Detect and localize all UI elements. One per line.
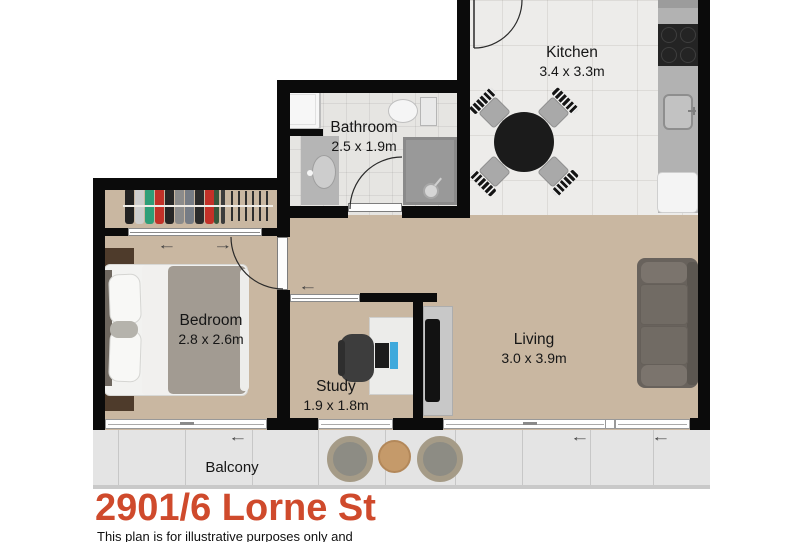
wall-segment xyxy=(393,418,443,430)
plan-disclaimer: This plan is for illustrative purposes o… xyxy=(97,529,353,542)
balcony-line xyxy=(522,430,523,485)
wall-segment xyxy=(360,293,437,302)
room-name: Balcony xyxy=(167,459,297,477)
office-chair-back xyxy=(338,340,345,376)
window xyxy=(615,419,690,429)
floorplan: ← → ← ← ← ← Kitchen 3.4 x 3.3m Bathroom … xyxy=(0,0,800,542)
room-dims: 3.0 x 3.9m xyxy=(469,349,599,367)
sofa-cushion xyxy=(640,284,688,325)
window-mullion xyxy=(605,419,615,429)
wall-segment xyxy=(277,80,470,93)
balcony-chair xyxy=(417,436,463,482)
wardrobe-sliding-door xyxy=(128,228,262,236)
pc-tower xyxy=(390,342,398,369)
sink-faucet xyxy=(693,107,695,115)
wall-segment xyxy=(690,418,710,430)
dining-table xyxy=(494,112,554,172)
plan-title: 2901/6 Lorne St xyxy=(95,489,376,527)
tv xyxy=(425,319,440,402)
window-handle xyxy=(523,422,537,425)
room-label-kitchen: Kitchen 3.4 x 3.3m xyxy=(507,44,637,80)
room-name: Bathroom xyxy=(299,119,429,137)
fridge xyxy=(657,172,698,213)
kitchen-sink xyxy=(663,94,693,130)
kitchen-counter-end xyxy=(658,0,698,8)
wall-segment xyxy=(93,178,290,190)
wall-segment xyxy=(267,418,318,430)
room-name: Study xyxy=(271,378,401,396)
shower-head xyxy=(423,183,439,199)
room-label-study: Study 1.9 x 1.8m xyxy=(271,378,401,414)
wall-segment xyxy=(402,206,470,218)
sofa-back xyxy=(687,262,698,385)
room-dims: 2.8 x 2.6m xyxy=(146,330,276,348)
wall-segment xyxy=(262,228,290,236)
bathroom-door-leaf xyxy=(348,203,402,212)
room-dims: 3.4 x 3.3m xyxy=(507,62,637,80)
window-slide-arrow: ← xyxy=(216,430,261,443)
basin-faucet xyxy=(307,170,313,176)
office-chair xyxy=(340,334,374,382)
room-label-balcony: Balcony xyxy=(167,459,297,477)
slide-arrow-left: ← xyxy=(145,238,190,251)
cooktop-burner xyxy=(680,27,696,43)
study-sliding-door xyxy=(290,294,360,302)
window-slide-arrow: ← xyxy=(558,430,603,443)
sofa-pillow xyxy=(641,262,687,283)
cooktop-burner xyxy=(680,47,696,63)
room-label-living: Living 3.0 x 3.9m xyxy=(469,331,599,367)
wall-segment xyxy=(698,0,710,430)
balcony-chair xyxy=(327,436,373,482)
room-name: Kitchen xyxy=(507,44,637,62)
window-handle xyxy=(180,422,194,425)
balcony-line xyxy=(318,430,319,485)
accent-pillow xyxy=(110,321,138,338)
cooktop-burner xyxy=(661,47,677,63)
room-name: Living xyxy=(469,331,599,349)
wall-segment xyxy=(93,178,105,430)
pillow xyxy=(108,273,142,324)
room-dims: 1.9 x 1.8m xyxy=(271,396,401,414)
room-dims: 2.5 x 1.9m xyxy=(299,137,429,155)
window xyxy=(318,419,393,429)
room-label-bedroom: Bedroom 2.8 x 2.6m xyxy=(146,312,276,348)
slide-arrow-right: → xyxy=(201,238,246,251)
room-name: Bedroom xyxy=(146,312,276,330)
window-slide-arrow: ← xyxy=(639,430,684,443)
wall-segment xyxy=(105,228,128,236)
sofa-cushion xyxy=(640,326,688,365)
monitor xyxy=(375,343,389,368)
wardrobe-rail xyxy=(123,205,273,207)
room-label-bathroom: Bathroom 2.5 x 1.9m xyxy=(299,119,429,155)
balcony-line xyxy=(118,430,119,485)
wall-segment xyxy=(457,0,470,218)
balcony-table xyxy=(378,440,411,473)
study-slide-arrow: ← xyxy=(286,279,331,292)
basin xyxy=(312,155,336,189)
sofa-pillow xyxy=(641,365,687,386)
wall-segment xyxy=(413,293,423,430)
cooktop-burner xyxy=(661,27,677,43)
